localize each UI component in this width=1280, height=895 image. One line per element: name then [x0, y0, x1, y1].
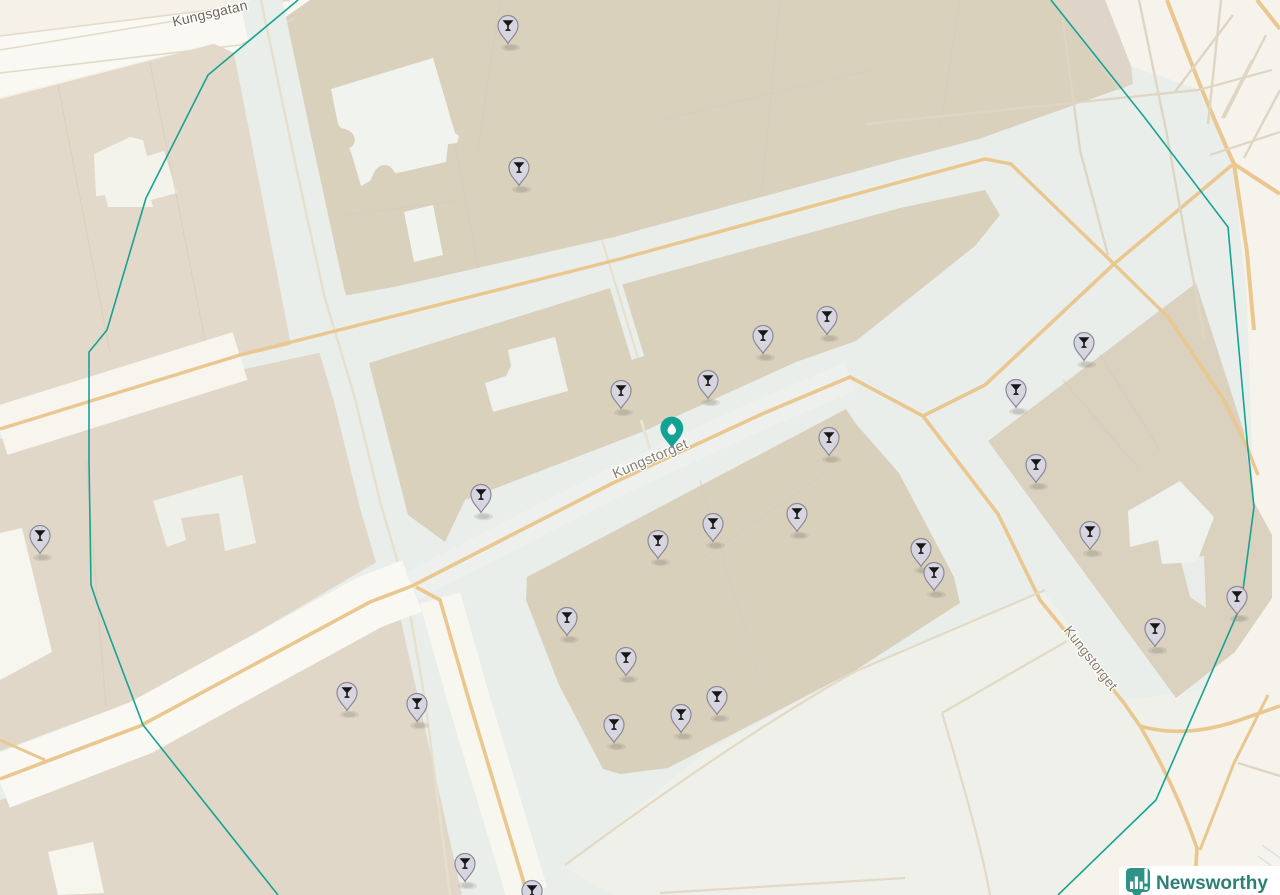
svg-text:Newsworthy: Newsworthy — [1156, 873, 1268, 894]
